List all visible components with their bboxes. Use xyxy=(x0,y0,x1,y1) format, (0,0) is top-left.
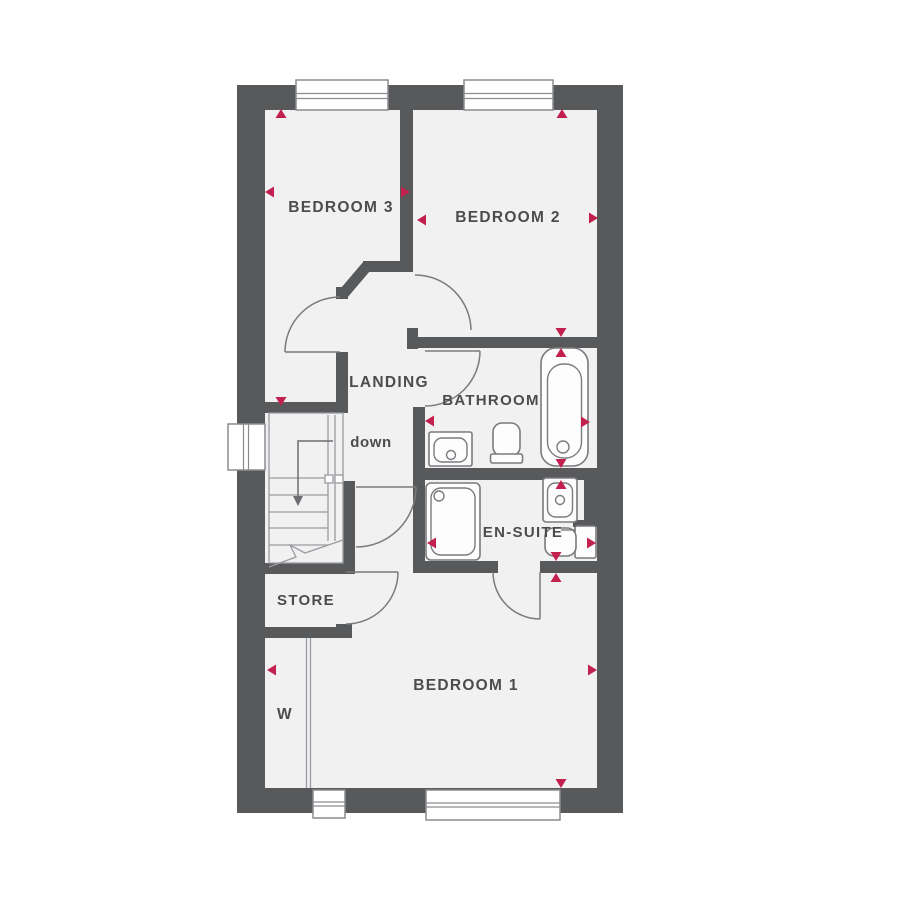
wall-bathroom-top xyxy=(413,337,597,348)
wall-stairwell-right xyxy=(343,481,355,563)
window-bedroom1-small xyxy=(313,790,345,818)
window-bedroom2 xyxy=(464,80,553,110)
label-ensuite: EN-SUITE xyxy=(483,524,563,541)
wall-ensuite-right-lining xyxy=(584,480,597,522)
wall-ensuite-bottom-right xyxy=(540,561,597,573)
label-bedroom3: BEDROOM 3 xyxy=(288,199,394,216)
shower-icon xyxy=(426,483,480,560)
wall-store-bottom xyxy=(265,627,336,638)
label-wardrobe: W xyxy=(277,706,293,723)
label-stairs-down: down xyxy=(350,434,392,451)
wall-store-door-stub xyxy=(336,624,352,638)
floor-plan-drawing: BEDROOM 3 BEDROOM 2 LANDING BATHROOM dow… xyxy=(0,0,900,900)
window-bedroom3 xyxy=(296,80,388,110)
label-store: STORE xyxy=(277,592,335,609)
floor-plan-page: BEDROOM 3 BEDROOM 2 LANDING BATHROOM dow… xyxy=(0,0,900,900)
wall-ensuite-left xyxy=(413,480,425,573)
wall-stairs-top xyxy=(265,402,347,413)
balustrade-post xyxy=(325,475,333,483)
wall-ensuite-bottom-left xyxy=(413,561,498,573)
toilet-icon xyxy=(491,423,523,463)
label-bathroom: BATHROOM xyxy=(442,392,540,409)
basin-icon xyxy=(429,432,472,466)
label-bedroom1: BEDROOM 1 xyxy=(413,677,519,694)
wall-landing-bathroom xyxy=(413,407,425,468)
window-bedroom1-large xyxy=(426,790,560,820)
balustrade-post xyxy=(335,475,343,483)
window-stairs-left xyxy=(228,424,265,470)
wall-store-top xyxy=(265,563,355,574)
label-landing: LANDING xyxy=(349,374,429,391)
label-bedroom2: BEDROOM 2 xyxy=(455,209,561,226)
bath-icon xyxy=(541,348,588,466)
